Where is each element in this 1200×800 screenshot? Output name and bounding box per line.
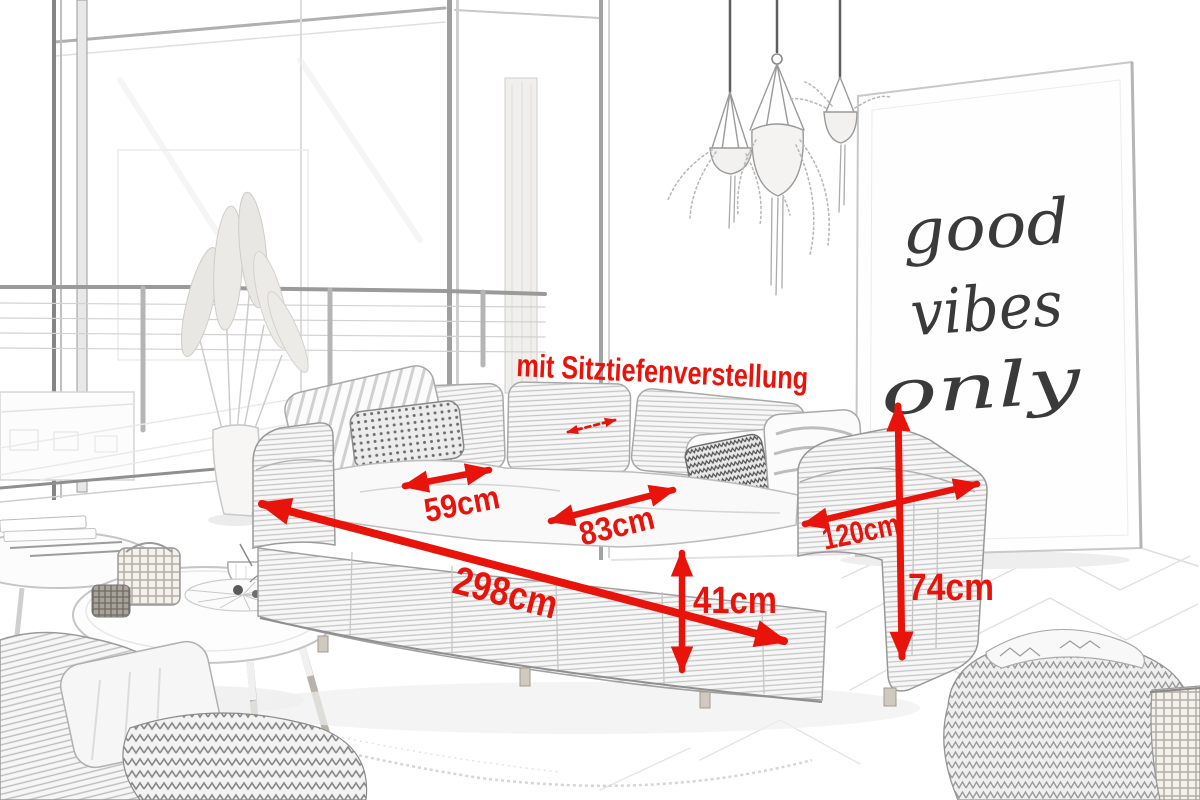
- sofa-back-cushion-center: [507, 382, 631, 474]
- sofa-armrest-right: [798, 429, 987, 691]
- hanging-planter-left: [668, 0, 790, 228]
- poster-text-line-1: good: [899, 184, 1072, 269]
- chevron-blanket: [123, 713, 367, 800]
- product-dimension-illustration: good vibes only: [0, 0, 1200, 800]
- dark-knit-pillow: [349, 400, 465, 471]
- small-dark-basket: [92, 585, 130, 617]
- sofa-foot: [884, 688, 896, 706]
- dimension-label-seat-height: 41cm: [693, 580, 777, 622]
- window-top-frame-inner: [55, 22, 445, 56]
- ceiling-edge: [455, 10, 600, 18]
- sofa-foot: [700, 692, 710, 708]
- poster-text-line-3: only: [878, 343, 1084, 430]
- pampas-plume: [261, 288, 315, 377]
- sofa-foot: [520, 668, 530, 686]
- wall-column: [505, 78, 537, 393]
- dimension-label-total-height: 74cm: [908, 567, 994, 609]
- window-top-frame: [55, 8, 445, 42]
- decor-item: [233, 585, 243, 595]
- floor-pouf: [944, 629, 1200, 800]
- poster-text-line-2: vibes: [908, 267, 1065, 350]
- wall-floor-junction: [612, 554, 850, 560]
- scene-sketch: good vibes only: [0, 0, 1200, 800]
- sofa-foot: [318, 636, 328, 652]
- floor-line: [1141, 548, 1198, 566]
- basket-right: [1151, 686, 1200, 800]
- sofa-armrest-left: [253, 423, 335, 548]
- vase: [213, 425, 259, 516]
